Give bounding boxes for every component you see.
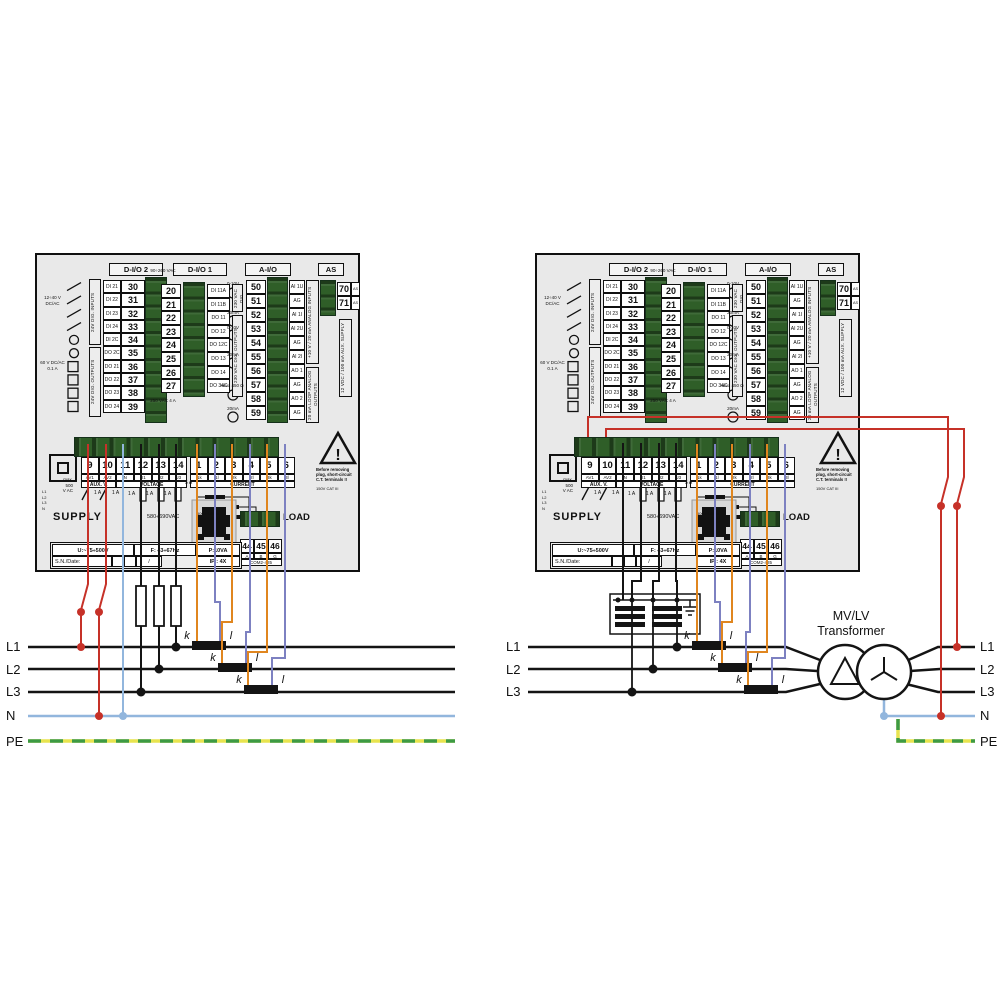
aio-outputs-vlabel: 20 mA LOOP ANALOG OUTPUTS xyxy=(806,367,819,423)
terminal-number: 24 xyxy=(161,338,181,352)
left-meter-unit: ! D-I/ xyxy=(35,253,360,572)
terminal-number: 26 xyxy=(661,366,681,380)
terminal-number: 57 xyxy=(746,378,766,392)
terminal-number: 4 xyxy=(743,457,761,474)
aux-fuse-rating: 1 A xyxy=(594,491,601,496)
aio-note-1: 20mA xyxy=(220,310,246,316)
current-terminals: 123456 xyxy=(190,457,295,474)
terminal-label: AS − xyxy=(351,296,360,310)
aux-voltage-terminals: 91011121314 xyxy=(81,457,187,474)
terminal-sublabel: I3l xyxy=(278,474,296,481)
serial-date-label: S.N./Date: xyxy=(552,556,612,567)
terminal-label: DI 2C xyxy=(603,333,621,346)
dio1-output-rating: 250 VAC 4 A xyxy=(645,398,681,404)
com-port-name: COM2-485 xyxy=(240,559,282,566)
terminal-number: 39 xyxy=(621,400,645,413)
terminal-label: DO 22 xyxy=(603,373,621,386)
terminal-label: DO 24 xyxy=(603,400,621,413)
terminal-number: 52 xyxy=(746,308,766,322)
dio2-terminal-rows: DI 2130 DI 2231 DI 2332 DI 2433 DI 2C34 … xyxy=(103,280,145,413)
group-aux-v: AUX. V. xyxy=(81,481,116,488)
terminal-number: 21 xyxy=(661,298,681,312)
terminal-label: DI 24 xyxy=(603,320,621,333)
terminal-number: 6 xyxy=(278,457,296,474)
warning-line: C.T. terminals !! xyxy=(316,477,362,482)
com-terminals: 444546 xyxy=(240,539,282,553)
aux-voltage-terminals: 91011121314 xyxy=(581,457,687,474)
bus-label: L2 xyxy=(980,662,994,677)
terminal-row: DI 2433 xyxy=(603,320,645,333)
max-vac-1: max. xyxy=(63,477,73,482)
terminal-number: 31 xyxy=(121,293,145,306)
group-current: CURRENT xyxy=(190,481,295,488)
mini-phase-label: L1 xyxy=(42,489,46,495)
earth-icon xyxy=(683,600,697,615)
terminal-row: DI 2332 xyxy=(603,307,645,320)
rj45-port xyxy=(192,500,236,546)
dio1-terminal-numbers: 2021222324252627 xyxy=(661,284,681,393)
terminal-number: 37 xyxy=(621,373,645,386)
terminal-number: 31 xyxy=(621,293,645,306)
cat-rating-2: 300V CAT IV xyxy=(197,516,220,521)
voltage-fuse-rating: 1 A xyxy=(664,492,671,497)
terminal-sublabel: I2l xyxy=(743,474,761,481)
ct-warning-text: Before removing plug, short-circuit C.T.… xyxy=(316,467,362,483)
terminal-number: 13 xyxy=(652,457,670,474)
terminal-row: DO 2338 xyxy=(103,386,145,399)
terminal-sublabel: U1 xyxy=(134,474,152,481)
terminal-sublabel: I2l xyxy=(243,474,261,481)
bus-label: N xyxy=(980,708,989,723)
right-ct-terminal-letters: k l k l k l xyxy=(684,630,785,686)
dio2-terminal-rows: DI 2130 DI 2231 DI 2332 DI 2433 DI 2C34 … xyxy=(603,280,645,413)
terminal-number: 55 xyxy=(246,350,266,364)
terminal-number: 14 xyxy=(669,457,687,474)
terminal-strip-dio1 xyxy=(683,282,705,397)
terminal-sublabel: U1 xyxy=(634,474,652,481)
terminal-number: 53 xyxy=(246,322,266,336)
terminal-label: DI 23 xyxy=(103,307,121,320)
bus-label: L1 xyxy=(6,639,20,654)
terminal-label: AI 1I xyxy=(789,308,805,322)
terminal-label: AG xyxy=(789,294,805,308)
cat-ratings: 500V CAT III 300V CAT IV xyxy=(697,511,720,521)
terminal-label: DI 2C xyxy=(103,333,121,346)
terminal-number: 27 xyxy=(661,379,681,393)
main-terminal-strip xyxy=(574,437,779,457)
dio1-terminal-labels: DI 11ADI 11BDO 11DO 12DO 12CDO 13DO 14DO… xyxy=(707,284,730,393)
terminal-row: DI 2C34 xyxy=(103,333,145,346)
ct-k-label: k xyxy=(710,652,716,664)
terminal-label: AI 2I xyxy=(789,350,805,364)
aio-terminal-labels: AI 1UAGAI 1IAI 2UAGAI 2IAO 1AGAO 2AG xyxy=(289,280,305,420)
left-junction-dots xyxy=(77,608,181,720)
terminal-number: 10 xyxy=(99,457,117,474)
voltage-rating: U:~75÷500V xyxy=(52,544,134,556)
terminal-number: 1 xyxy=(690,457,708,474)
as-terminal-rows: 70AS + 71AS − xyxy=(337,282,360,310)
aio-note-5: 20mA xyxy=(720,406,746,412)
terminal-label: AI 1U xyxy=(289,280,305,294)
terminal-sublabel: AV2 xyxy=(99,474,117,481)
aio-note-1: 20mA xyxy=(720,310,746,316)
terminal-number: 2 xyxy=(708,457,726,474)
date-separator-cell: / xyxy=(136,556,162,567)
warning-line: C.T. terminals !! xyxy=(816,477,862,482)
terminal-number: 32 xyxy=(121,307,145,320)
terminal-number: 51 xyxy=(246,294,266,308)
svg-text:!: ! xyxy=(335,447,340,464)
ip-rating: IP : 4X xyxy=(196,556,240,567)
bus-label: L2 xyxy=(6,662,20,677)
terminal-row: DI 2130 xyxy=(603,280,645,293)
terminal-number: 11 xyxy=(616,457,634,474)
terminal-label: DO 2C xyxy=(603,346,621,359)
supply-label: SUPPLY xyxy=(553,511,602,523)
dio2-outputs-vlabel: 24V DIG. OUTPUTS xyxy=(89,347,101,417)
terminal-label: AI 2U xyxy=(289,322,305,336)
terminal-label: DO 22 xyxy=(103,373,121,386)
dio1-input-rating: 90÷260 VAC xyxy=(145,268,181,274)
load-label: LOAD xyxy=(783,512,810,523)
terminal-label: DI 22 xyxy=(103,293,121,306)
group-voltage: VOLTAGE xyxy=(616,481,687,488)
max-vac-note: max. 500 V AC xyxy=(551,477,573,494)
aux-fuse-rating: 1 A xyxy=(94,491,101,496)
terminal-row: DI 2C34 xyxy=(603,333,645,346)
terminal-label: DI 21 xyxy=(103,280,121,293)
meter-device: ! D-I/ xyxy=(35,253,360,572)
terminal-number: 2 xyxy=(208,457,226,474)
digital-input-switch-icons xyxy=(567,283,581,412)
terminal-row: 70AS + xyxy=(837,282,860,296)
terminal-number: 23 xyxy=(661,325,681,339)
terminal-number: 3 xyxy=(225,457,243,474)
terminal-row: DO 2237 xyxy=(603,373,645,386)
terminal-number: 6 xyxy=(778,457,796,474)
voltage-fuse-rating: 1 A xyxy=(164,492,171,497)
terminal-number: 58 xyxy=(246,392,266,406)
cat-rating-2: 300V CAT IV xyxy=(697,516,720,521)
ct-l-label: l xyxy=(282,674,285,686)
ct-k-label: k xyxy=(684,630,690,642)
terminal-sublabel: I1k xyxy=(690,474,708,481)
terminal-number: 12 xyxy=(134,457,152,474)
terminal-number: 10 xyxy=(599,457,617,474)
supply-label: SUPPLY xyxy=(53,511,102,523)
terminal-strip-aio xyxy=(767,277,788,423)
right-bus-labels: L1 L2 L3 N PE xyxy=(980,639,998,749)
terminal-label: AG xyxy=(289,294,305,308)
terminal-strip-aio xyxy=(267,277,288,423)
terminal-label: AG xyxy=(289,406,305,420)
terminal-number: 55 xyxy=(746,350,766,364)
serial-cell xyxy=(112,556,124,567)
terminal-number: 21 xyxy=(161,298,181,312)
ct-l-label: l xyxy=(256,652,259,664)
mini-phase-label: L3 xyxy=(42,500,46,506)
group-aux-v: AUX. V. xyxy=(581,481,616,488)
terminal-row: DO 2338 xyxy=(603,386,645,399)
terminal-number: 35 xyxy=(621,346,645,359)
terminal-number: 56 xyxy=(246,364,266,378)
bus-label: L1 xyxy=(980,639,994,654)
terminal-number: 27 xyxy=(161,379,181,393)
aio-note-2: 0-10V xyxy=(220,325,246,331)
aio-terminal-labels: AI 1UAGAI 1IAI 2UAGAI 2IAO 1AGAO 2AG xyxy=(789,280,805,420)
terminal-number: 23 xyxy=(161,325,181,339)
terminal-number: 34 xyxy=(621,333,645,346)
terminal-number: 37 xyxy=(121,373,145,386)
voltage-fuse-rating: 1 A xyxy=(628,492,635,497)
terminal-row: DO 2136 xyxy=(103,360,145,373)
terminal-sublabel: AV2 xyxy=(599,474,617,481)
terminal-number: 36 xyxy=(621,360,645,373)
terminal-row: DO 2C35 xyxy=(603,346,645,359)
meter-device: ! D-I/ xyxy=(535,253,860,572)
terminal-number: 50 xyxy=(246,280,266,294)
ct-k-label: k xyxy=(184,630,190,642)
terminal-number: 46 xyxy=(768,539,782,553)
aio-terminal-numbers: 50515253545556575859 xyxy=(746,280,766,420)
left-ct-terminal-letters: k l k l k l xyxy=(184,630,285,686)
transformer-label-2: Transformer xyxy=(817,624,885,638)
terminal-row: DO 2237 xyxy=(103,373,145,386)
terminal-number: 32 xyxy=(621,307,645,320)
as-vlabel: 12 VDC / 100 mA AUX. SUPPLY xyxy=(339,319,352,397)
bus-label: L2 xyxy=(506,662,520,677)
terminal-number: 4 xyxy=(243,457,261,474)
serial-cell xyxy=(612,556,624,567)
terminal-label: AG xyxy=(789,406,805,420)
max-vac-1: max. xyxy=(563,477,573,482)
terminal-number: 56 xyxy=(746,364,766,378)
supply-range: 580÷690VAC xyxy=(147,514,179,520)
terminal-label: AO 2 xyxy=(789,392,805,406)
frequency-rating: F: 43÷67Hz xyxy=(634,544,696,556)
serial-cell xyxy=(624,556,636,567)
terminal-number: 5 xyxy=(260,457,278,474)
group-voltage: VOLTAGE xyxy=(116,481,187,488)
warning-triangle-icon: ! xyxy=(821,433,855,464)
terminal-number: 54 xyxy=(746,336,766,350)
max-vac-2: 500 xyxy=(65,483,73,488)
warning-triangle-icon: ! xyxy=(321,433,355,464)
as-terminal-rows: 70AS + 71AS − xyxy=(837,282,860,310)
terminal-number: 24 xyxy=(661,338,681,352)
aio-inputs-vlabel: +10 V / 20 mA ANALOG INPUTS xyxy=(306,280,319,364)
dio1-terminal-numbers: 2021222324252627 xyxy=(161,284,181,393)
terminal-number: 5 xyxy=(760,457,778,474)
terminal-sublabel: I3l xyxy=(778,474,796,481)
terminal-label: DI 21 xyxy=(603,280,621,293)
ct-l-label: l xyxy=(730,630,733,642)
block-title-aio: A-I/O xyxy=(245,263,291,276)
supply-range: 580÷690VAC xyxy=(647,514,679,520)
terminal-number: 30 xyxy=(121,280,145,293)
aio-note-4: max. 450 Ω xyxy=(717,383,747,389)
aio-note-3: 20mA xyxy=(220,352,246,358)
dio1-inputs-vlabel: 230 VAC DIG. INPUTS xyxy=(732,284,743,312)
bus-label: L3 xyxy=(506,684,520,699)
max-vac-note: max. 500 V AC xyxy=(51,477,73,494)
terminal-number: 71 xyxy=(837,296,851,310)
terminal-number: 57 xyxy=(246,378,266,392)
mini-phase-label: N xyxy=(42,506,46,512)
frequency-rating: F: 43÷67Hz xyxy=(134,544,196,556)
dio1-input-rating: 90÷260 VAC xyxy=(645,268,681,274)
wiring-diagram-page: ! D-I/ xyxy=(0,0,1000,1000)
terminal-number: 50 xyxy=(746,280,766,294)
aio-note-5: 20mA xyxy=(220,406,246,412)
left-diagram-buses xyxy=(28,647,455,741)
terminal-row: DO 2136 xyxy=(603,360,645,373)
terminal-number: 11 xyxy=(116,457,134,474)
terminal-label: DO 14 xyxy=(207,366,230,380)
terminal-label: DO 14 xyxy=(707,366,730,380)
aio-inputs-vlabel: +10 V / 20 mA ANALOG INPUTS xyxy=(806,280,819,364)
main-terminal-strip xyxy=(74,437,279,457)
rj45-port xyxy=(692,500,736,546)
mini-phase-labels: L1L2L3N xyxy=(42,489,46,511)
ct-l-label: l xyxy=(756,652,759,664)
terminal-number: 71 xyxy=(337,296,351,310)
terminal-sublabel: U2 xyxy=(652,474,670,481)
terminal-number: 20 xyxy=(661,284,681,298)
dio2-output-rating: 60 V DC/AC 0.1 A xyxy=(539,360,566,371)
terminal-label: DO 2C xyxy=(103,346,121,359)
terminal-strip-dio1 xyxy=(183,282,205,397)
aio-note-0: 0-10V xyxy=(720,281,746,287)
voltage-fuse-rating: 1 A xyxy=(146,492,153,497)
terminal-label: DI 24 xyxy=(103,320,121,333)
terminal-label: AI 1I xyxy=(289,308,305,322)
date-separator-cell: / xyxy=(636,556,662,567)
bus-label: PE xyxy=(980,734,998,749)
terminal-number: 14 xyxy=(169,457,187,474)
terminal-number: 52 xyxy=(246,308,266,322)
terminal-number: 70 xyxy=(337,282,351,296)
terminal-number: 13 xyxy=(152,457,170,474)
terminal-number: 34 xyxy=(121,333,145,346)
max-vac-3: V AC xyxy=(563,488,573,493)
terminal-number: 9 xyxy=(581,457,599,474)
terminal-number: 33 xyxy=(121,320,145,333)
ct-k-label: k xyxy=(736,674,742,686)
terminal-label: DO 12C xyxy=(707,338,730,352)
power-rating: P:10VA xyxy=(196,544,240,556)
terminal-number: 46 xyxy=(268,539,282,553)
dio1-inputs-vlabel: 230 VAC DIG. INPUTS xyxy=(232,284,243,312)
max-vac-2: 500 xyxy=(565,483,573,488)
right-diagram-buses xyxy=(528,647,975,741)
dio2-inputs-vlabel: 24V DIG. INPUTS xyxy=(89,279,101,345)
terminal-label: AI 2U xyxy=(789,322,805,336)
ct-l-label: l xyxy=(782,674,785,686)
terminal-label: AS + xyxy=(351,282,360,296)
terminal-label: AO 1 xyxy=(789,364,805,378)
terminal-sublabel: I3k xyxy=(760,474,778,481)
serial-cell xyxy=(124,556,136,567)
load-connector xyxy=(240,511,280,527)
terminal-number: 9 xyxy=(81,457,99,474)
bus-label: L3 xyxy=(6,684,20,699)
terminal-label: AS − xyxy=(851,296,860,310)
ct-k-label: k xyxy=(236,674,242,686)
block-title-as: AS xyxy=(318,263,344,276)
transformer-label: MV/LV Transformer xyxy=(817,609,885,638)
dio2-input-rating: 12÷40 V DC/AC xyxy=(39,295,66,306)
terminal-row: DO 2439 xyxy=(103,400,145,413)
terminal-sublabel: I1k xyxy=(190,474,208,481)
terminal-sublabel: I2k xyxy=(725,474,743,481)
right-voltage-transformers xyxy=(610,594,700,692)
dio1-terminal-labels: DI 11ADI 11BDO 11DO 12DO 12CDO 13DO 14DO… xyxy=(207,284,230,393)
terminal-label: AG xyxy=(789,336,805,350)
ct-k-label: k xyxy=(210,652,216,664)
terminal-number: 45 xyxy=(754,539,768,553)
mini-phase-label: L3 xyxy=(542,500,546,506)
terminal-number: 39 xyxy=(121,400,145,413)
aio-note-2: 0-10V xyxy=(720,325,746,331)
terminal-number: 20 xyxy=(161,284,181,298)
svg-text:!: ! xyxy=(835,447,840,464)
terminal-row: DI 2332 xyxy=(103,307,145,320)
block-title-aio: A-I/O xyxy=(745,263,791,276)
terminal-row: 71AS − xyxy=(837,296,860,310)
voltage-fuse-rating: 1 A xyxy=(128,492,135,497)
right-mid-bus-labels: L1 L2 L3 xyxy=(506,639,520,699)
terminal-label: DI 23 xyxy=(603,307,621,320)
terminal-label: AS + xyxy=(851,282,860,296)
terminal-label: DO 12C xyxy=(207,338,230,352)
aio-note-0: 0-10V xyxy=(220,281,246,287)
aio-outputs-vlabel: 20 mA LOOP ANALOG OUTPUTS xyxy=(306,367,319,423)
voltage-fuse-rating: 1 A xyxy=(646,492,653,497)
com-terminals: 444546 xyxy=(740,539,782,553)
terminal-sublabel: I1l xyxy=(708,474,726,481)
group-current: CURRENT xyxy=(690,481,795,488)
terminal-strip-as xyxy=(820,280,836,316)
terminal-row: DI 2231 xyxy=(603,293,645,306)
ip-rating: IP : 4X xyxy=(696,556,740,567)
terminal-number: 3 xyxy=(725,457,743,474)
dio2-outputs-vlabel: 24V DIG. OUTPUTS xyxy=(589,347,601,417)
terminal-number: 44 xyxy=(240,539,254,553)
rating-plate: U:~75÷500V F: 43÷67Hz P:10VA S.N./Date: … xyxy=(550,542,742,569)
terminal-number: 59 xyxy=(746,406,766,420)
as-vlabel: 12 VDC / 100 mA AUX. SUPPLY xyxy=(839,319,852,397)
current-sublabels: I1kI1lI2kI2lI3kI3l xyxy=(690,474,795,481)
terminal-number: 36 xyxy=(121,360,145,373)
current-sublabels: I1kI1lI2kI2lI3kI3l xyxy=(190,474,295,481)
current-rating: 5 A xyxy=(185,481,192,486)
current-terminals: 123456 xyxy=(690,457,795,474)
terminal-sublabel: AV1 xyxy=(81,474,99,481)
bus-label: L1 xyxy=(506,639,520,654)
com-port-name: COM2-485 xyxy=(740,559,782,566)
block-title-as: AS xyxy=(818,263,844,276)
terminal-number: 25 xyxy=(661,352,681,366)
terminal-number: 26 xyxy=(161,366,181,380)
terminal-sublabel: I2k xyxy=(225,474,243,481)
block-title-dio1: D-I/O 1 xyxy=(173,263,227,276)
terminal-number: 35 xyxy=(121,346,145,359)
serial-date-label: S.N./Date: xyxy=(52,556,112,567)
mvlv-transformer-symbol xyxy=(818,645,911,699)
terminal-number: 70 xyxy=(837,282,851,296)
dio2-output-rating: 60 V DC/AC 0.1 A xyxy=(39,360,66,371)
